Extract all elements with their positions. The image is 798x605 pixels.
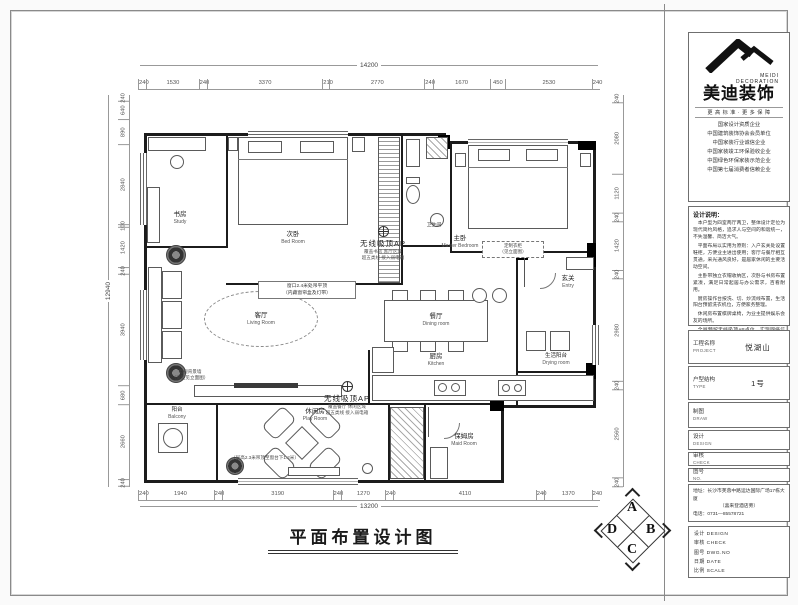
room-label-zh: 客厅: [254, 312, 267, 319]
stool: [362, 463, 373, 474]
vanity: [406, 139, 420, 167]
room-label-en: Drying room: [524, 360, 588, 366]
sofa-back: [148, 267, 162, 363]
dim-top-segments: 24015302403370210277024016704502530240: [138, 79, 600, 90]
field-box: 图号NO.: [688, 468, 790, 482]
kitchen-counter: [372, 375, 594, 401]
ap-title: 无线吸顶AP: [340, 238, 426, 249]
dim-segment: 240: [138, 490, 146, 500]
room-label-en: Study: [152, 219, 208, 225]
room-label-zh: 阳台: [171, 407, 182, 413]
dim-segment: 890: [118, 120, 129, 145]
dim-segment: 240: [536, 490, 544, 500]
door-leaf: [428, 407, 429, 437]
room-label-dining: 餐厅 Dining room: [406, 313, 466, 327]
dim-segment: 210: [322, 79, 329, 89]
field-label: 制图DRAW: [689, 407, 727, 424]
field-box: 户型结构TYPE1号: [688, 366, 790, 400]
note-paragraph: 主卧带独立衣帽收纳区，次卧与书房布置紧凑，满足日常起居与办公需求，百看耐用。: [693, 274, 785, 295]
dim-segment: 240: [118, 268, 129, 275]
room-label-en: Entry: [546, 283, 590, 289]
room-label-living: 客厅 Living Room: [247, 312, 275, 326]
dim-segment: 4110: [393, 490, 536, 500]
wall: [226, 135, 228, 248]
note-line: （见立面图）: [484, 249, 542, 255]
desk: [148, 137, 206, 151]
approval-line: 审核 CHECK: [694, 539, 784, 548]
ap-icon: [342, 381, 353, 392]
credential-line: 中国家装竣工环保验收企业: [693, 148, 785, 157]
approval-line: 设计 DESIGN: [694, 530, 784, 539]
field-value: 悦湖山: [727, 342, 789, 353]
credential-line: 国家设计资质企业: [693, 121, 785, 130]
dim-segment: 240: [424, 79, 432, 89]
credential-line: 中国第七届消费者信赖企业: [693, 166, 785, 175]
approval-line: 日期 DATE: [694, 558, 784, 567]
room-label-en: Kitchen: [406, 361, 466, 367]
address-line: 地址：长沙市芙蓉中路运达国际广场17栋大厦: [693, 488, 785, 503]
dim-segment: 1270: [341, 490, 385, 500]
nightstand: [352, 137, 365, 152]
room-label-kitchen: 厨房 Kitchen: [406, 353, 466, 367]
desk-chair: [170, 155, 184, 169]
chair: [420, 290, 436, 301]
room-label-zh: 餐厅: [430, 313, 443, 320]
dim-top-overall: 14200: [140, 62, 598, 69]
orientation-compass: A B C D: [596, 492, 668, 568]
note-line: 窗口2.4米处吊平顶: [261, 283, 353, 290]
dim-segment: 240: [385, 490, 393, 500]
note-paragraph: 本户型为四室两厅两卫，整体设计定位为现代简约风格，追求人与空间的和谐统一，不失温…: [693, 221, 785, 242]
chair: [448, 341, 464, 352]
room-label-en: Maid Room: [434, 441, 494, 447]
design-notes-body: 本户型为四室两厅两卫，整体设计定位为现代简约风格，追求人与空间的和谐统一，不失温…: [693, 221, 785, 342]
field-box: 工程名称PROJECT悦湖山: [688, 330, 790, 364]
sofa-seat: [162, 271, 182, 299]
dim-left-segments: 2406408902840100142024039406802660240: [118, 95, 130, 487]
burner: [502, 384, 510, 392]
room-label-zh: 生活阳台: [545, 353, 567, 359]
wardrobe-note: 定制衣柜 （见立面图）: [482, 241, 544, 258]
window: [238, 478, 358, 485]
drawing-title: 平面布置设计图: [268, 523, 458, 554]
column: [490, 401, 504, 411]
ap-subline: 超五类线 接入弱电箱: [340, 255, 426, 261]
note-paragraph: 厨房操作台按洗、切、炒流线布置，生活阳台预留洗衣机位，方便家务整理。: [693, 297, 785, 311]
dim-segment: 2660: [118, 405, 129, 480]
dim-segment: 680: [118, 386, 129, 405]
tv: [234, 383, 298, 388]
living-rug: 客厅 Living Room: [204, 291, 318, 347]
dim-segment: 3190: [222, 490, 333, 500]
note-line: （内藏窗帘盒及灯带）: [261, 290, 353, 297]
address-line: （喜来登酒店旁）: [693, 503, 785, 511]
bench: [288, 467, 340, 476]
beam-note: （层高2.3米吊顶至窗台下1.2米）: [200, 455, 330, 461]
room-label-study: 书房 Study: [152, 211, 208, 225]
room-label-en: Living Room: [247, 320, 275, 326]
dim-bottom-overall: 13200: [140, 503, 598, 510]
dim-segment: 240: [612, 214, 623, 222]
window: [140, 153, 147, 225]
field-sublabel: DRAW: [693, 416, 727, 422]
pillow: [526, 149, 558, 161]
field-label: 设计DESIGN: [689, 432, 727, 449]
dim-segment: 240: [612, 271, 623, 279]
room-label-zh: 主卧: [454, 235, 467, 242]
nightstand: [228, 137, 238, 151]
cabinet: [430, 447, 448, 479]
toilet-tank: [406, 177, 420, 184]
wall: [216, 405, 218, 481]
shower: [426, 137, 448, 159]
dim-segment: 2560: [612, 390, 623, 478]
brand-name: 美迪装饰: [689, 85, 789, 104]
dim-segment: 2840: [118, 145, 129, 225]
floor-plan: 客厅 Living Room 书房 Study 次卧 Bed Room 主卧 M…: [138, 95, 600, 487]
sink-bowl: [451, 383, 460, 392]
utility-shaft: [390, 407, 424, 479]
stool: [472, 288, 487, 303]
room-label-balcony: 阳台 Balcony: [152, 407, 202, 420]
plant: [166, 245, 186, 265]
wall: [501, 405, 596, 408]
ap-title: 无线吸顶AP: [304, 393, 390, 404]
credential-line: 中国家装行业诚信企业: [693, 139, 785, 148]
room-label-zh: 卫生间: [427, 223, 441, 228]
dim-segment: 2770: [329, 79, 424, 89]
approval-box: 设计 DESIGN审核 CHECK图号 DWG.NO日期 DATE比例 SCAL…: [688, 526, 790, 578]
approval-line: 图号 DWG.NO: [694, 549, 784, 558]
room-label-zh: 保姆房: [454, 433, 474, 440]
dim-segment: 240: [118, 480, 129, 487]
ap-icon: [378, 226, 389, 237]
dim-segment: 2080: [612, 103, 623, 175]
tv-note: 电视背景墙 （造型见立面图）: [144, 369, 236, 381]
dim-segment: 240: [214, 490, 222, 500]
field-sublabel: NO.: [693, 476, 727, 482]
bed-line: [468, 167, 568, 168]
field-box: 审核CHECK: [688, 452, 790, 466]
dim-left-overall: 12940: [103, 95, 114, 487]
room-label-zh: 玄关: [562, 275, 575, 282]
note-paragraph: 休闲房布置棋牌桌椅，为业主提供娱乐会友的场所。: [693, 312, 785, 326]
brand-roof-icon: [704, 39, 774, 73]
pillow: [248, 141, 282, 153]
dim-segment: 240: [138, 79, 146, 89]
room-label-maid: 保姆房 Maid Room: [434, 433, 494, 447]
field-sublabel: PROJECT: [693, 348, 727, 354]
appliance: [550, 331, 570, 351]
burner: [514, 384, 522, 392]
wifi-ap-annotation: 无线吸顶AP 覆盖书房 客厅区域 超五类线 接入弱电箱: [340, 226, 426, 261]
room-label-en: Master Bedroom: [438, 243, 482, 249]
shoe-cabinet: [566, 257, 594, 270]
dim-bottom-segments: 24019402403190240127024041102401370240: [138, 490, 600, 501]
dim-segment: 1120: [612, 175, 623, 214]
brand-credentials: 国家设计资质企业中国建筑装饰协会会员单位中国家装行业诚信企业中国家装竣工环保验收…: [693, 121, 785, 175]
sofa-seat: [162, 331, 182, 359]
sink-bowl: [438, 383, 447, 392]
contact-box: 地址：长沙市芙蓉中路运达国际广场17栋大厦 （喜来登酒店旁） 电话：0731—8…: [688, 484, 790, 522]
wifi-ap-annotation: 无线吸顶AP 覆盖餐厅 休闲区域 超五类线 接入弱电箱: [304, 381, 390, 416]
chair: [392, 341, 408, 352]
field-sublabel: DESIGN: [693, 441, 727, 447]
sofa-seat: [162, 301, 182, 329]
washer: [163, 428, 183, 448]
wall: [518, 371, 594, 373]
wall: [424, 405, 426, 481]
field-box: 制图DRAW: [688, 402, 790, 428]
chair: [420, 341, 436, 352]
note-line: （层高2.3米吊顶至窗台下1.2米）: [200, 455, 330, 461]
room-label-zh: 厨房: [430, 353, 443, 360]
brand-tagline: 更 高 标 准 · 更 多 保 障: [695, 107, 783, 118]
dim-segment: 1370: [544, 490, 592, 500]
field-label: 工程名称PROJECT: [689, 339, 727, 356]
toilet: [406, 185, 420, 204]
stool: [492, 288, 507, 303]
nightstand: [580, 153, 591, 167]
field-value: 1号: [727, 378, 789, 389]
wardrobe: [378, 137, 400, 283]
room-label-zh: 次卧: [287, 231, 300, 238]
dim-segment: 640: [118, 102, 129, 120]
dim-segment: 2530: [505, 79, 592, 89]
design-notes-header: 设计说明：: [693, 210, 785, 219]
room-label-entry: 玄关 Entry: [546, 275, 590, 289]
dim-segment: 240: [333, 490, 341, 500]
field-box: 设计DESIGN: [688, 430, 790, 450]
note-line: （造型见立面图）: [144, 375, 236, 381]
column: [578, 141, 596, 150]
field-label: 户型结构TYPE: [689, 375, 727, 392]
dim-segment: 3940: [118, 275, 129, 386]
wall: [401, 135, 403, 285]
logo-box: MEIDI DECORATION 美迪装饰 更 高 标 准 · 更 多 保 障 …: [688, 32, 790, 202]
ceiling-note: 窗口2.4米处吊平顶 （内藏窗帘盒及灯带）: [258, 281, 356, 299]
dim-right-segments: 24020801120240142024029802402560240: [612, 95, 624, 487]
pillow: [300, 141, 334, 153]
dim-segment: 450: [490, 79, 505, 89]
dim-segment: 240: [592, 79, 600, 89]
dim-segment: 1670: [433, 79, 490, 89]
nightstand: [455, 153, 466, 167]
appliance: [526, 331, 546, 351]
approval-line: 比例 SCALE: [694, 567, 784, 576]
wall: [144, 246, 228, 248]
dim-segment: 3370: [207, 79, 322, 89]
note-paragraph: 平面布局以实用为原则：入户玄关处设置鞋柜，方便业主进出使用；客厅与餐厅相互贯通，…: [693, 244, 785, 272]
dim-segment: 2980: [612, 279, 623, 382]
field-sublabel: TYPE: [693, 384, 727, 390]
field-label: 审核CHECK: [689, 451, 727, 468]
bed-line: [238, 159, 348, 160]
dim-segment: 1530: [146, 79, 198, 89]
room-label-bedroom: 次卧 Bed Room: [263, 231, 323, 245]
dim-segment: 1940: [146, 490, 213, 500]
room-label-drying: 生活阳台 Drying room: [524, 353, 588, 366]
field-sublabel: CHECK: [693, 460, 727, 466]
room-label-en: Bed Room: [263, 239, 323, 245]
room-label-en: Dining room: [406, 321, 466, 327]
phone-line: 电话：0731—85578721: [693, 511, 785, 519]
dim-segment: 240: [612, 479, 623, 487]
credential-line: 中国建筑装饰协会会员单位: [693, 130, 785, 139]
window: [592, 325, 599, 365]
credential-line: 中国绿色环保家装示范企业: [693, 157, 785, 166]
compass-letter-b: B: [646, 522, 655, 538]
door-leaf: [524, 257, 525, 287]
dim-segment: 1420: [118, 228, 129, 268]
design-notes-box: 设计说明： 本户型为四室两厅两卫，整体设计定位为现代简约风格，追求人与空间的和谐…: [688, 206, 790, 326]
dim-segment: 240: [118, 95, 129, 102]
chair: [448, 290, 464, 301]
room-label-en: Balcony: [152, 414, 202, 420]
fridge: [372, 347, 394, 373]
room-label-zh: 书房: [174, 211, 187, 218]
wall: [501, 405, 504, 483]
floorplan-sheet: { "sheet": { "title": "平面布置设计图" }, "bran…: [0, 0, 798, 605]
field-label: 图号NO.: [689, 467, 727, 484]
dim-value: 14200: [357, 62, 381, 69]
window: [140, 290, 147, 360]
dim-segment: 240: [199, 79, 207, 89]
dim-value: 12940: [105, 280, 112, 302]
ap-subline: 超五类线 接入弱电箱: [304, 410, 390, 416]
chair: [392, 290, 408, 301]
pillow: [478, 149, 510, 161]
room-label-master: 主卧 Master Bedroom: [438, 235, 482, 249]
dim-value: 13200: [357, 503, 381, 510]
room-label-en: Play Room: [280, 416, 350, 422]
dim-segment: 1420: [612, 222, 623, 271]
